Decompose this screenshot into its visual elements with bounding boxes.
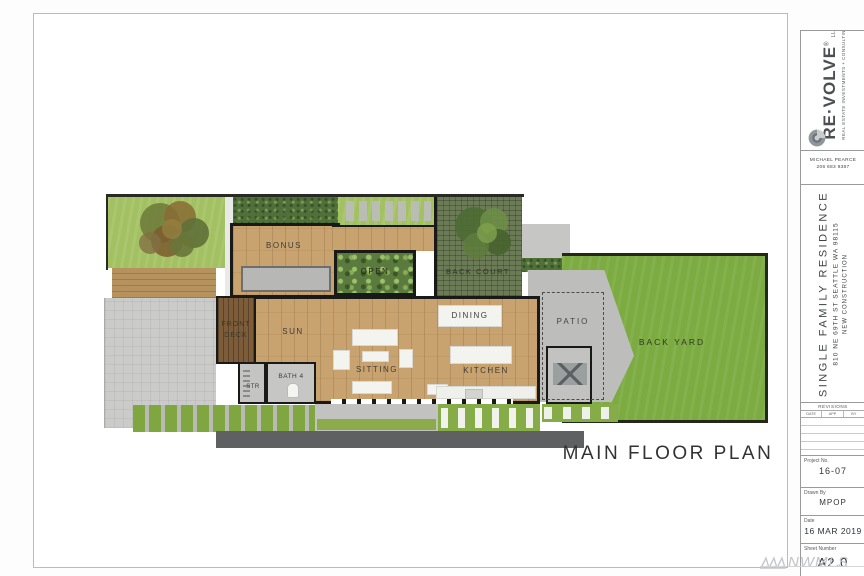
sun-label: SUN [273,327,313,337]
drawn-by-label: Drawn By [801,488,864,496]
project-lockup: SINGLE FAMILY RESIDENCE 810 NE 69TH ST S… [818,190,849,396]
revisions-col-by: BY [844,411,864,417]
paver-strip-top [338,197,434,225]
sofa [352,381,392,394]
project-name: SINGLE FAMILY RESIDENCE [818,190,830,396]
property-line-left [106,194,108,270]
brand-tagline: REAL ESTATE INVESTMENTS + CONSULTING [841,31,846,140]
sidewalk [216,431,584,448]
revisions-col-date: DATE [801,411,822,417]
bonus-label: BONUS [254,241,314,251]
window-wall-south [331,399,513,404]
project-subtitle: NEW CONSTRUCTION [843,190,849,396]
kitchen-label: KITCHEN [448,366,524,376]
revisions-col-app: APP [822,411,843,417]
date-value: 16 MAR 2019 [801,524,864,536]
planting-strips [133,405,315,432]
back-court-label: BACK COURT [432,267,524,276]
patio-dashed-outline [542,292,604,400]
watermark-text: NWMLS [788,554,849,571]
front-yard-tree [122,195,226,265]
open-label: OPEN [347,267,403,277]
bath4-room [266,362,316,404]
revisions-title: REVISIONS [801,403,864,411]
dining-label: DINING [438,311,502,321]
drawn-by-value: MPOP [801,496,864,507]
paver-lawn-right [438,404,540,432]
sitting-label: SITTING [341,365,413,375]
back-court-tree [440,200,520,266]
stair-room [238,362,266,404]
date-label: Date [801,516,864,524]
brand-lockup: RE·VOLVE® LLC REAL ESTATE INVESTMENTS + … [820,31,846,140]
title-block: RE·VOLVE® LLC REAL ESTATE INVESTMENTS + … [800,30,864,576]
floor-plan-page: BACK COURT BACK YARD PATIO BONUS OPEN [0,0,864,576]
registered-mark: ® [825,42,831,46]
stepping-pavers [341,201,431,221]
plan-title: MAIN FLOOR PLAN [558,443,778,465]
contact-name: MICHAEL PEARCE [801,157,864,164]
revisions-row [801,434,864,442]
bonus-inset-deck [241,266,331,292]
sink [465,389,483,399]
toilet [287,383,299,398]
revisions-section: REVISIONS DATE APP BY [801,403,864,456]
brand-llc: LLC [831,31,837,37]
revisions-row [801,442,864,450]
contact-phone: 206 683 9387 [801,164,864,171]
entry-path [315,404,438,432]
front-deck-label: FRONT DECK [217,320,255,341]
revisions-row [801,418,864,426]
backyard-stone-strip [542,404,618,422]
brand-name: RE·VOLVE [820,46,839,140]
front-deck-strip [112,268,216,298]
project-no-value: 16-07 [801,464,864,476]
drawn-by-field: Drawn By MPOP [801,488,864,516]
watermark: NWMLS [760,549,864,575]
bath4-label: BATH 4 [266,373,316,381]
deck-above-open [332,225,434,251]
shrub-strip [317,419,436,430]
project-address: 810 NE 69TH ST SEATTLE WA 98115 [833,190,840,396]
bonus-room [230,223,340,298]
date-field: Date 16 MAR 2019 [801,516,864,544]
title-block-logo-section: RE·VOLVE® LLC REAL ESTATE INVESTMENTS + … [801,31,864,151]
back-yard-label: BACK YARD [622,337,722,348]
backyard-stones [544,407,616,419]
revisions-row [801,426,864,434]
white-stepping-stones [441,408,537,428]
kitchen-counter [436,386,536,399]
title-block-contact-section: MICHAEL PEARCE 206 683 9387 [801,151,864,185]
hedge-top [233,197,338,224]
nautilus-logo-icon [807,128,827,148]
stair-label: STR [240,384,266,392]
kitchen-island [450,346,512,364]
sitting-table [352,329,398,346]
project-no-field: Project No. 16-07 [801,456,864,488]
title-block-project-section: SINGLE FAMILY RESIDENCE 810 NE 69TH ST S… [801,185,864,403]
coffee-table [362,351,389,362]
watermark-line [760,566,864,567]
revisions-columns: DATE APP BY [801,411,864,418]
patio-label: PATIO [545,317,601,327]
project-no-label: Project No. [801,456,864,464]
stair-treads [243,367,250,397]
